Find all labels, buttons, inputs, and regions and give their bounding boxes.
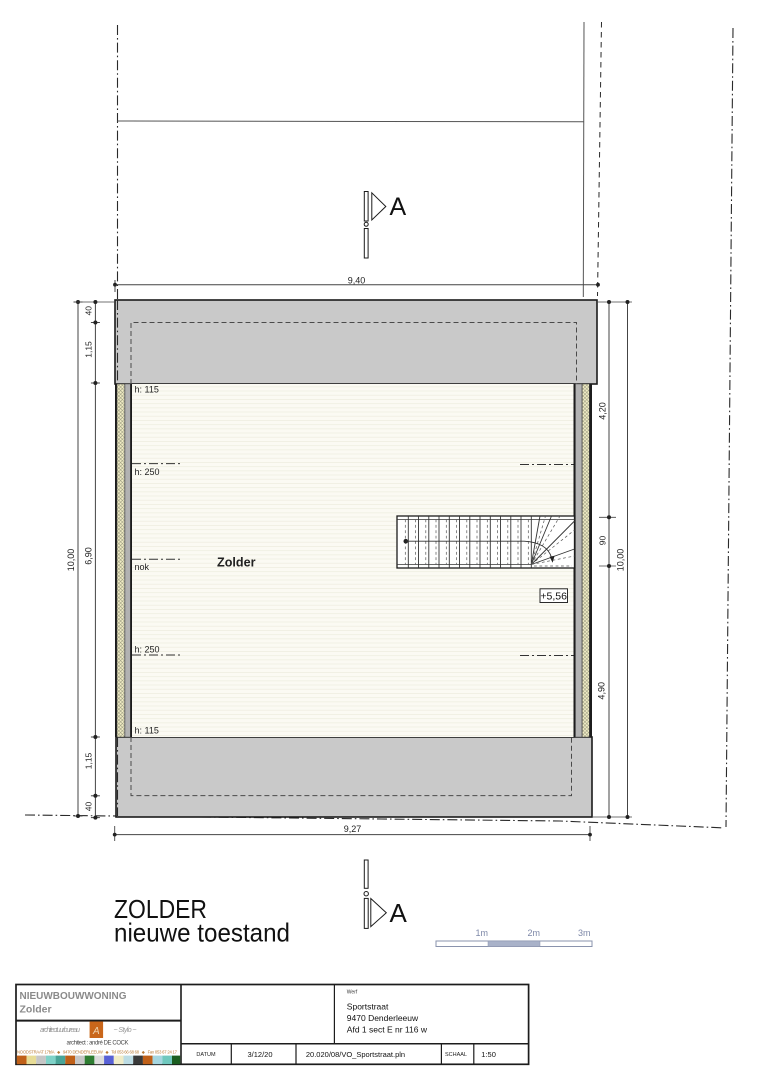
svg-text:Sportstraat: Sportstraat bbox=[347, 1002, 389, 1012]
svg-text:h: 250: h: 250 bbox=[135, 467, 160, 477]
svg-text:9,27: 9,27 bbox=[344, 824, 362, 834]
svg-text:1:50: 1:50 bbox=[481, 1050, 496, 1059]
svg-text:9,40: 9,40 bbox=[348, 276, 366, 286]
svg-text:nieuwe toestand: nieuwe toestand bbox=[114, 918, 290, 948]
svg-text:architectuurbureau: architectuurbureau bbox=[40, 1027, 80, 1034]
svg-text:Afd 1 sect E nr 116 w: Afd 1 sect E nr 116 w bbox=[347, 1024, 428, 1034]
svg-text:Werf: Werf bbox=[347, 990, 358, 996]
svg-text:4,20: 4,20 bbox=[598, 402, 608, 420]
svg-text:90: 90 bbox=[598, 536, 608, 546]
svg-text:Zolder: Zolder bbox=[20, 1004, 52, 1016]
svg-text:SCHAAL: SCHAAL bbox=[445, 1052, 467, 1058]
svg-text:~ Stylo ~: ~ Stylo ~ bbox=[114, 1027, 137, 1034]
svg-text:1,15: 1,15 bbox=[84, 752, 94, 769]
svg-text:A: A bbox=[390, 898, 408, 928]
svg-text:2m: 2m bbox=[527, 928, 540, 938]
svg-text:3m: 3m bbox=[578, 928, 591, 938]
svg-text:1m: 1m bbox=[475, 928, 488, 938]
svg-text:40: 40 bbox=[84, 306, 94, 316]
svg-text:10,00: 10,00 bbox=[66, 549, 76, 572]
svg-text:A: A bbox=[390, 193, 407, 221]
svg-text:40: 40 bbox=[84, 802, 94, 812]
svg-text:4,90: 4,90 bbox=[597, 682, 607, 700]
svg-text:NIEUWBOUWWONING: NIEUWBOUWWONING bbox=[20, 991, 127, 1002]
svg-text:nok: nok bbox=[135, 562, 150, 572]
svg-text:DATUM: DATUM bbox=[196, 1052, 216, 1058]
svg-text:10,00: 10,00 bbox=[616, 549, 626, 572]
svg-text:A: A bbox=[92, 1026, 100, 1037]
svg-text:3/12/20: 3/12/20 bbox=[247, 1050, 272, 1059]
svg-text:NOODSTRAAT 17b/A ◆ 9470 DE: NOODSTRAAT 17b/A ◆ 9470 DENDERLEEUW ◆ Te… bbox=[17, 1050, 178, 1055]
svg-text:+5,56: +5,56 bbox=[540, 591, 567, 603]
svg-text:h: 115: h: 115 bbox=[135, 385, 159, 395]
svg-text:9470 Denderleeuw: 9470 Denderleeuw bbox=[347, 1013, 419, 1023]
svg-text:h: 250: h: 250 bbox=[135, 645, 160, 655]
svg-text:6,90: 6,90 bbox=[84, 547, 94, 565]
svg-text:h: 115: h: 115 bbox=[135, 726, 159, 736]
svg-text:architect : andré DE COCK: architect : andré DE COCK bbox=[67, 1041, 129, 1047]
svg-text:Zolder: Zolder bbox=[217, 554, 256, 569]
svg-text:20.020/08/VO_Sportstraat.pln: 20.020/08/VO_Sportstraat.pln bbox=[306, 1050, 405, 1059]
svg-text:1,15: 1,15 bbox=[84, 341, 94, 358]
